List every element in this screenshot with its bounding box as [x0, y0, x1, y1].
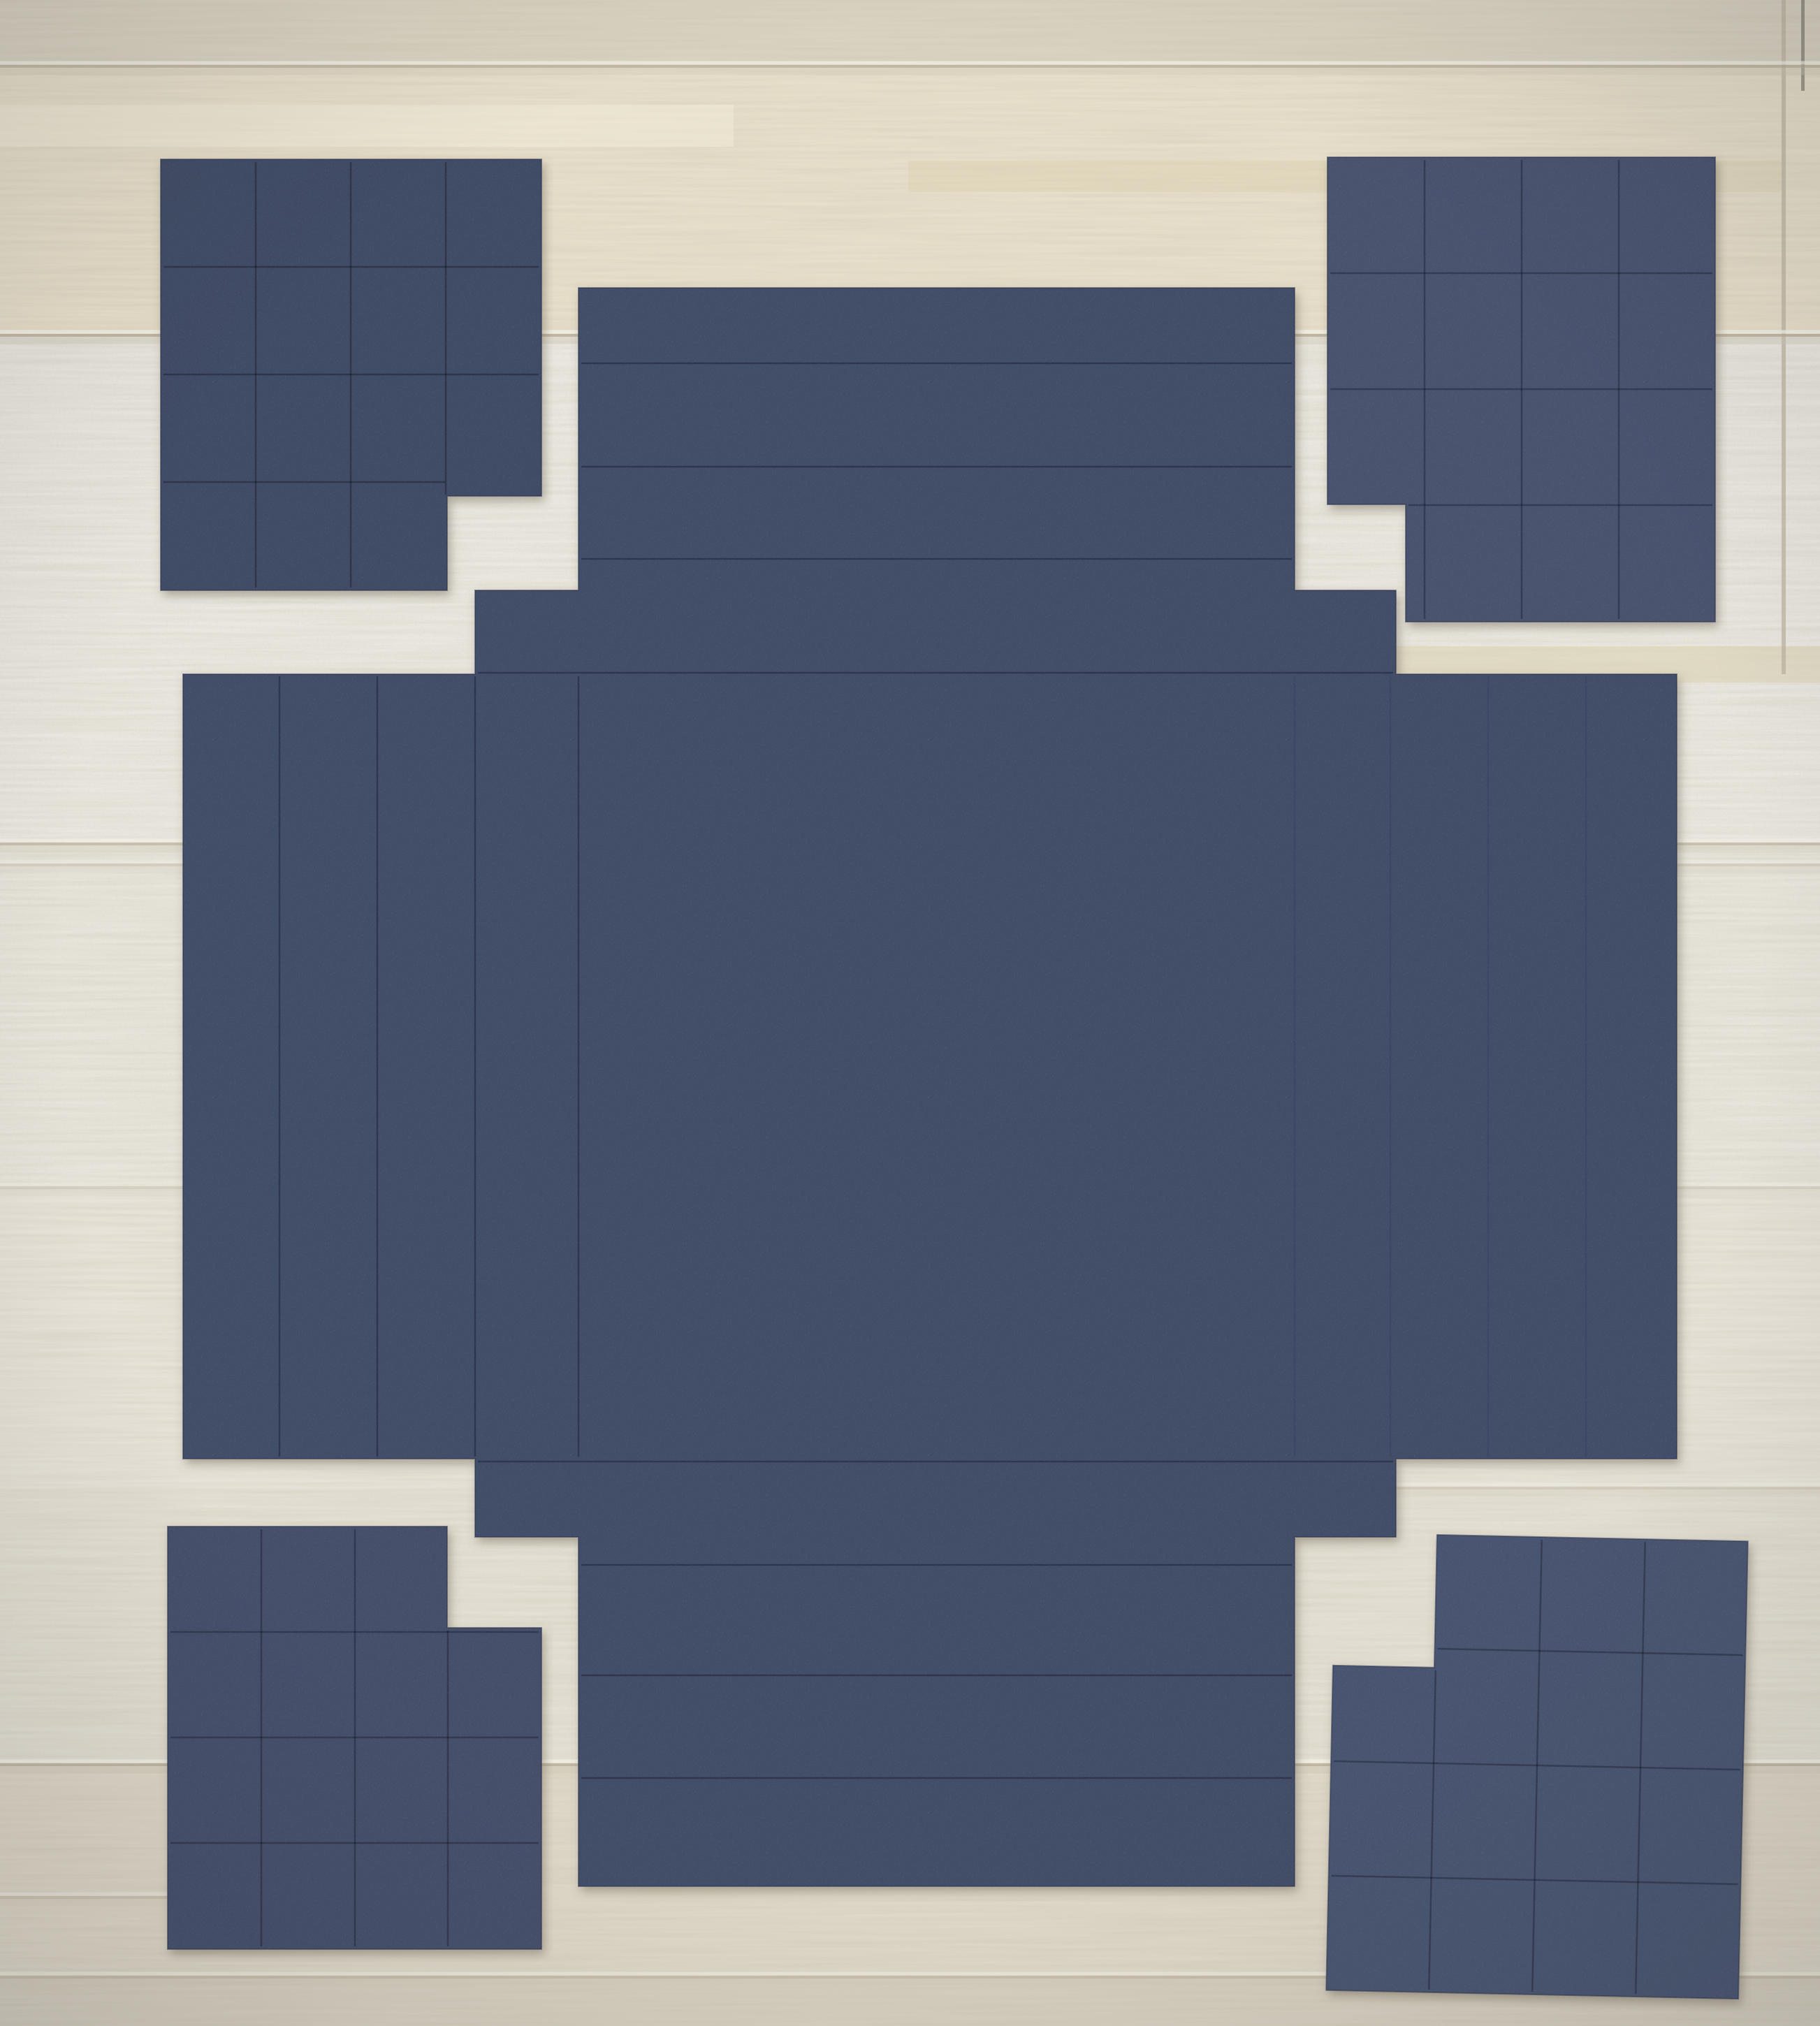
craft-photo — [0, 0, 1820, 2026]
photo-canvas — [0, 0, 1820, 2026]
vignette-overlay — [0, 0, 1820, 2026]
